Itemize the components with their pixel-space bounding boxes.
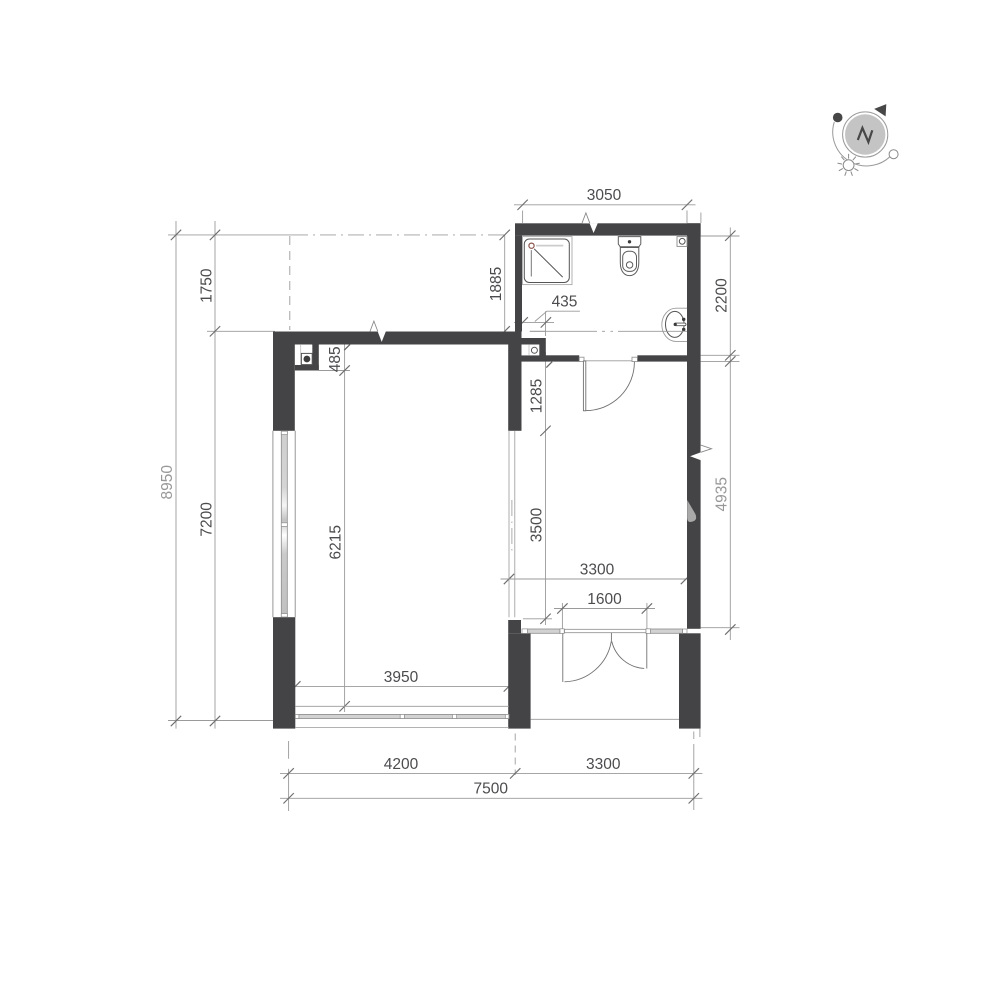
svg-text:3300: 3300 bbox=[580, 561, 615, 578]
svg-text:3050: 3050 bbox=[587, 187, 622, 204]
svg-text:1750: 1750 bbox=[199, 268, 216, 303]
svg-text:2200: 2200 bbox=[713, 278, 730, 313]
svg-text:1885: 1885 bbox=[488, 267, 505, 301]
svg-text:485: 485 bbox=[327, 346, 344, 372]
svg-text:4935: 4935 bbox=[713, 477, 730, 511]
svg-text:7200: 7200 bbox=[199, 502, 216, 537]
svg-text:1285: 1285 bbox=[529, 379, 546, 413]
svg-text:1600: 1600 bbox=[587, 591, 622, 608]
svg-text:3300: 3300 bbox=[586, 756, 621, 773]
svg-text:4200: 4200 bbox=[384, 756, 419, 773]
svg-text:3500: 3500 bbox=[529, 507, 546, 542]
svg-text:8950: 8950 bbox=[159, 465, 176, 500]
svg-text:435: 435 bbox=[552, 293, 578, 310]
svg-text:6215: 6215 bbox=[328, 525, 345, 559]
svg-text:3950: 3950 bbox=[384, 669, 419, 686]
svg-text:7500: 7500 bbox=[473, 781, 508, 798]
